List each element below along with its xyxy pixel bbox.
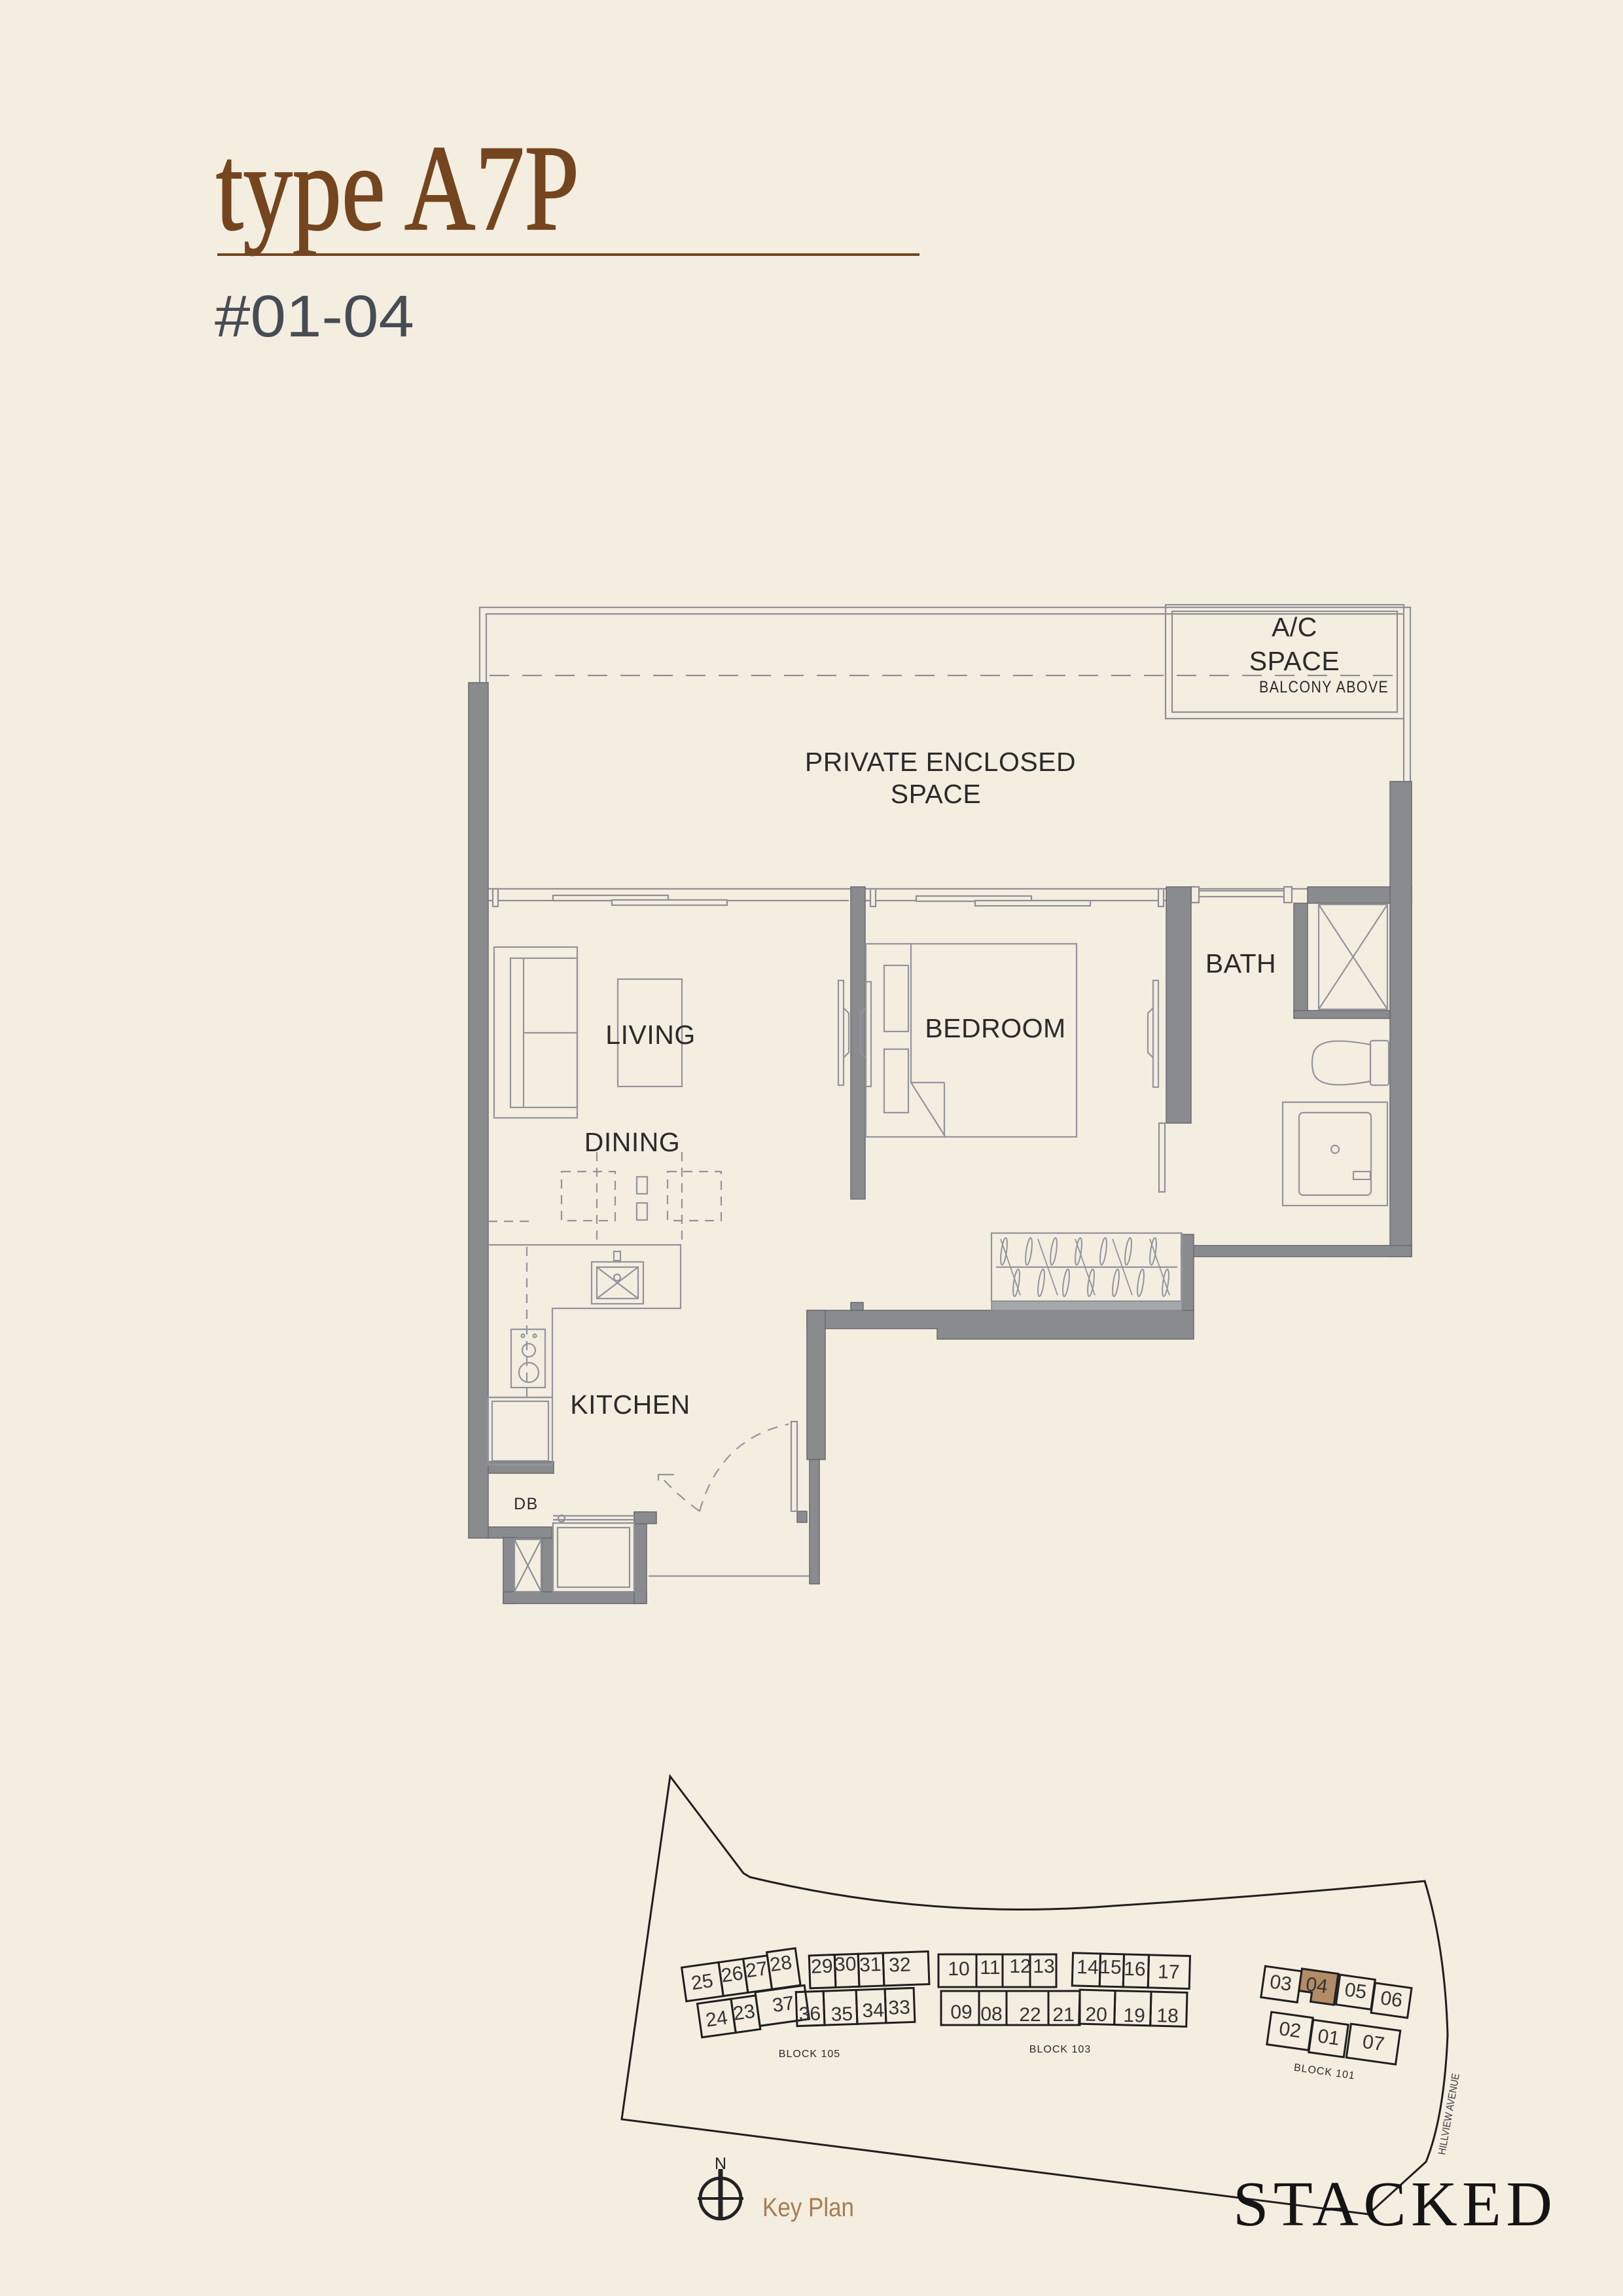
svg-text:N: N [715, 2155, 726, 2173]
svg-text:DB: DB [514, 1495, 539, 1513]
svg-text:10: 10 [948, 1958, 969, 1980]
svg-text:06: 06 [1379, 1987, 1404, 2011]
svg-text:BEDROOM: BEDROOM [925, 1013, 1065, 1043]
svg-text:03: 03 [1268, 1971, 1293, 1995]
svg-text:17: 17 [1158, 1961, 1180, 1983]
svg-text:34: 34 [862, 2000, 885, 2022]
svg-text:KITCHEN: KITCHEN [570, 1390, 690, 1420]
svg-text:25: 25 [690, 1970, 715, 1994]
svg-text:31: 31 [859, 1954, 882, 1976]
svg-text:DINING: DINING [584, 1127, 681, 1157]
svg-text:A/C: A/C [1272, 612, 1317, 642]
svg-text:SPACE: SPACE [891, 779, 981, 809]
svg-text:15: 15 [1099, 1956, 1122, 1979]
svg-text:28: 28 [768, 1952, 793, 1976]
svg-text:SPACE: SPACE [1249, 646, 1340, 676]
svg-text:26: 26 [720, 1962, 745, 1986]
svg-text:29: 29 [811, 1956, 834, 1978]
svg-text:19: 19 [1123, 2005, 1145, 2027]
svg-text:22: 22 [1019, 2004, 1041, 2026]
svg-text:32: 32 [889, 1954, 912, 1976]
svg-text:21: 21 [1052, 2004, 1074, 2026]
svg-text:36: 36 [798, 2003, 821, 2025]
svg-text:BATH: BATH [1205, 948, 1276, 978]
svg-text:BALCONY ABOVE: BALCONY ABOVE [1259, 678, 1389, 696]
svg-text:01: 01 [1316, 2025, 1341, 2049]
svg-text:#01-04: #01-04 [215, 284, 414, 350]
svg-text:Key Plan: Key Plan [762, 2193, 854, 2222]
svg-text:33: 33 [888, 1997, 911, 2019]
svg-text:18: 18 [1156, 2005, 1179, 2027]
svg-text:05: 05 [1344, 1979, 1368, 2003]
svg-text:30: 30 [834, 1953, 857, 1975]
svg-text:BLOCK 105: BLOCK 105 [779, 2049, 840, 2060]
svg-text:type A7P: type A7P [216, 120, 579, 256]
svg-text:16: 16 [1124, 1958, 1146, 1981]
svg-text:12: 12 [1009, 1956, 1031, 1977]
svg-text:04: 04 [1304, 1973, 1329, 1998]
svg-text:09: 09 [950, 2001, 972, 2023]
svg-text:23: 23 [732, 2000, 757, 2024]
svg-text:37: 37 [771, 1992, 796, 2017]
svg-text:PRIVATE ENCLOSED: PRIVATE ENCLOSED [805, 747, 1076, 777]
svg-text:07: 07 [1361, 2031, 1386, 2055]
svg-text:11: 11 [980, 1957, 1000, 1979]
svg-text:02: 02 [1277, 2018, 1302, 2042]
svg-text:20: 20 [1085, 2003, 1107, 2026]
svg-text:LIVING: LIVING [605, 1020, 695, 1050]
svg-text:BLOCK 103: BLOCK 103 [1029, 2044, 1091, 2055]
svg-text:14: 14 [1077, 1956, 1099, 1979]
svg-text:24: 24 [704, 2007, 729, 2031]
svg-text:13: 13 [1033, 1956, 1054, 1977]
svg-text:35: 35 [830, 2003, 853, 2026]
svg-text:08: 08 [980, 2003, 1002, 2025]
svg-text:27: 27 [744, 1958, 769, 1982]
